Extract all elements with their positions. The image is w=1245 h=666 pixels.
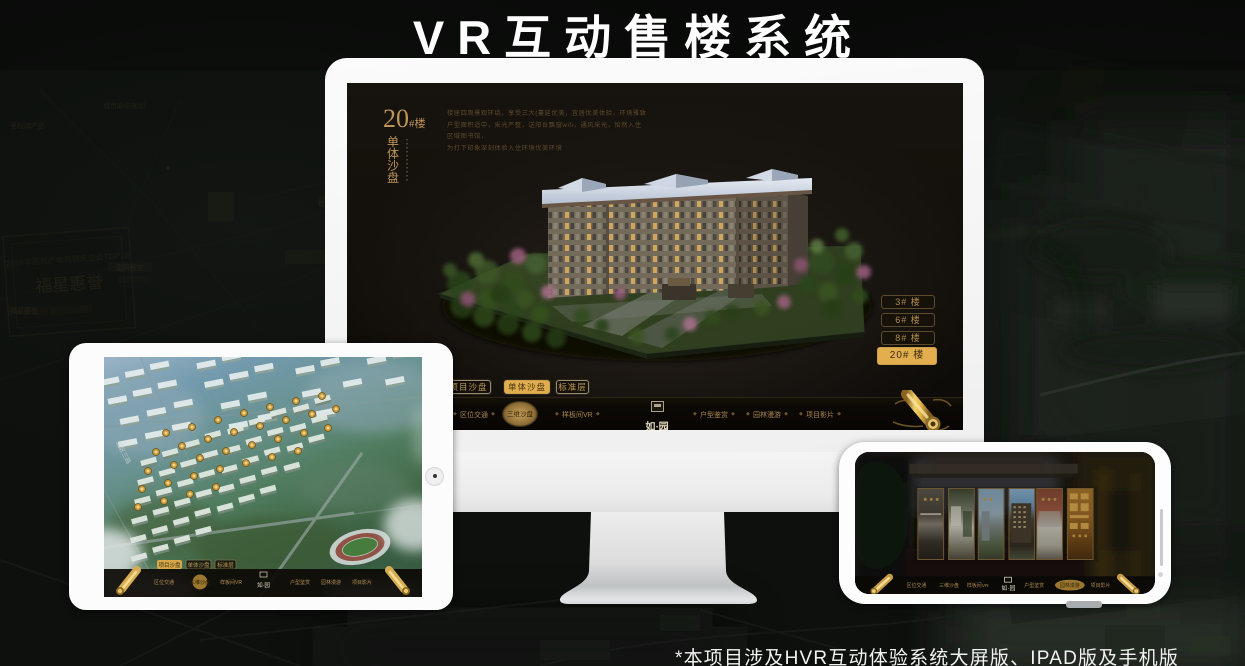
svg-text:户型鉴赏: 户型鉴赏 xyxy=(290,579,310,586)
svg-text:园林漫游: 园林漫游 xyxy=(321,579,341,586)
svg-text:福星惠誉: 福星惠誉 xyxy=(10,306,38,315)
svg-text:样板间VR: 样板间VR xyxy=(967,582,989,589)
svg-text:城市脉络规划: 城市脉络规划 xyxy=(103,101,145,110)
svg-text:如·园: 如·园 xyxy=(257,581,270,589)
svg-text:园林漫游: 园林漫游 xyxy=(1060,582,1080,589)
svg-text:如·园: 如·园 xyxy=(1002,584,1016,592)
svg-text:项目影片: 项目影片 xyxy=(1091,582,1111,589)
svg-text:标准层: 标准层 xyxy=(217,561,234,569)
svg-text:项目沙盘: 项目沙盘 xyxy=(158,561,181,569)
svg-text:区位交通: 区位交通 xyxy=(906,582,926,589)
svg-text:国风长安: 国风长安 xyxy=(116,263,144,272)
svg-text:区位交通: 区位交通 xyxy=(154,579,174,586)
svg-text:单体沙盘: 单体沙盘 xyxy=(187,561,210,569)
svg-text:里程碑产品: 里程碑产品 xyxy=(10,121,45,130)
svg-text:三维沙盘: 三维沙盘 xyxy=(190,579,210,586)
svg-text:项目影片: 项目影片 xyxy=(352,579,372,586)
svg-text:样板间VR: 样板间VR xyxy=(220,579,242,586)
svg-text:户型鉴赏: 户型鉴赏 xyxy=(1024,582,1044,589)
svg-text:三维沙盘: 三维沙盘 xyxy=(939,582,959,589)
